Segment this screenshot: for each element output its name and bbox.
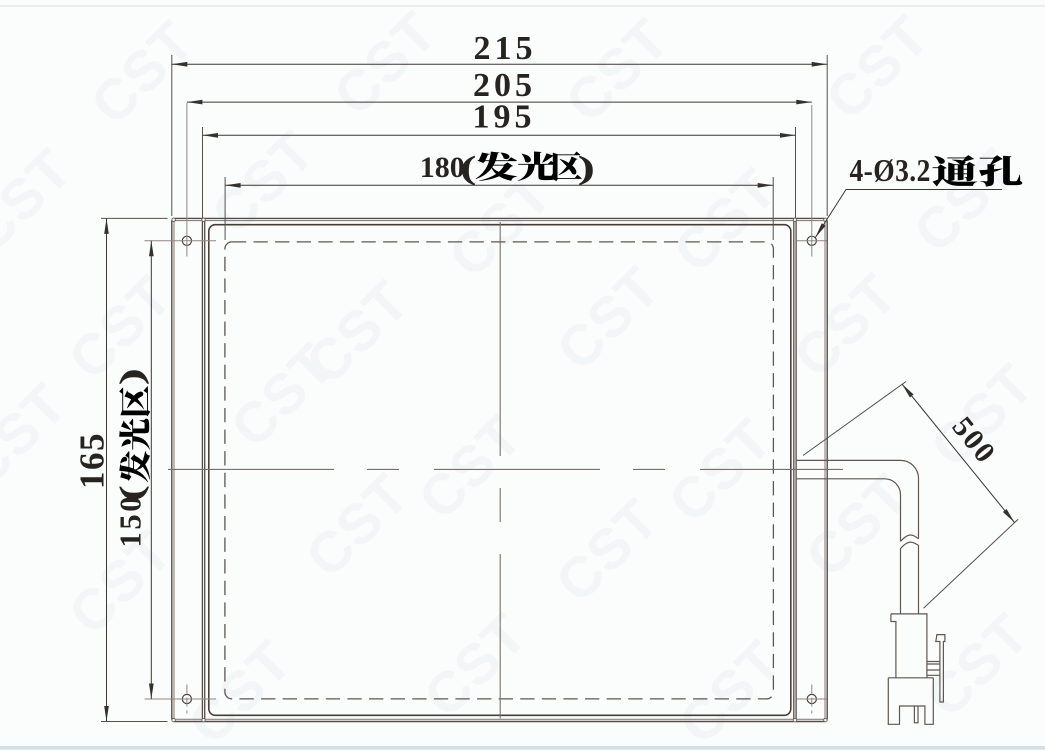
svg-text:(: (	[114, 485, 150, 501]
svg-text:215: 215	[474, 30, 537, 67]
svg-text:): )	[113, 368, 150, 386]
svg-text:4-Ø3.2: 4-Ø3.2	[850, 153, 931, 188]
svg-text:195: 195	[473, 98, 536, 135]
svg-text:180: 180	[420, 151, 465, 184]
svg-text:): )	[578, 149, 596, 186]
svg-text:(: (	[460, 150, 476, 186]
svg-text:165: 165	[72, 432, 111, 489]
